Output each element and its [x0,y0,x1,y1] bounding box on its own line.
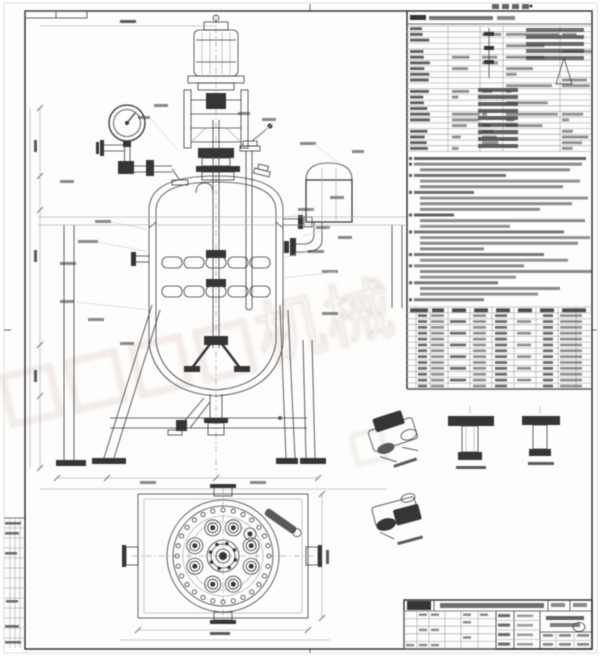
drawing-title [546,616,584,620]
mechanical-seal [198,148,234,158]
condenser-pot [284,163,352,256]
head-nozzle [254,163,272,177]
parts-list-table [407,307,591,389]
bottom-outlet [168,394,228,435]
company-logo [407,601,431,610]
gauge-side-flange [100,140,104,156]
plan-handle [264,508,303,539]
agitator-drive-lantern [184,90,248,180]
discharge-valve [176,420,187,431]
drawing-sheet: □□□□机械 □ [0,0,600,657]
top-stamp [492,4,533,9]
right-panel [407,4,592,389]
drawing-number-zone [540,616,592,649]
detail-views [365,406,560,549]
gauge-valve [118,161,134,174]
watermark-text: □□□□机械 [0,268,402,436]
title-block [404,600,592,649]
drawing-canvas: □□□□机械 □ [0,0,600,657]
shaft-coupling [206,93,226,109]
spec-table [407,26,591,152]
detail-view-3 [522,406,560,465]
revision-table [404,611,496,649]
panel-header [407,15,591,24]
signature-table [496,611,540,649]
company-name [440,603,544,608]
technical-requirements-text [409,157,592,301]
detail-view-2 [448,406,494,469]
revision-binding-strip [4,518,25,648]
watermark: □□□□机械 □ [0,268,402,471]
jacket-nozzles [131,215,312,266]
sight-glass-dome [196,183,213,193]
detail-view-4 [370,492,427,549]
plan-view [122,484,322,624]
